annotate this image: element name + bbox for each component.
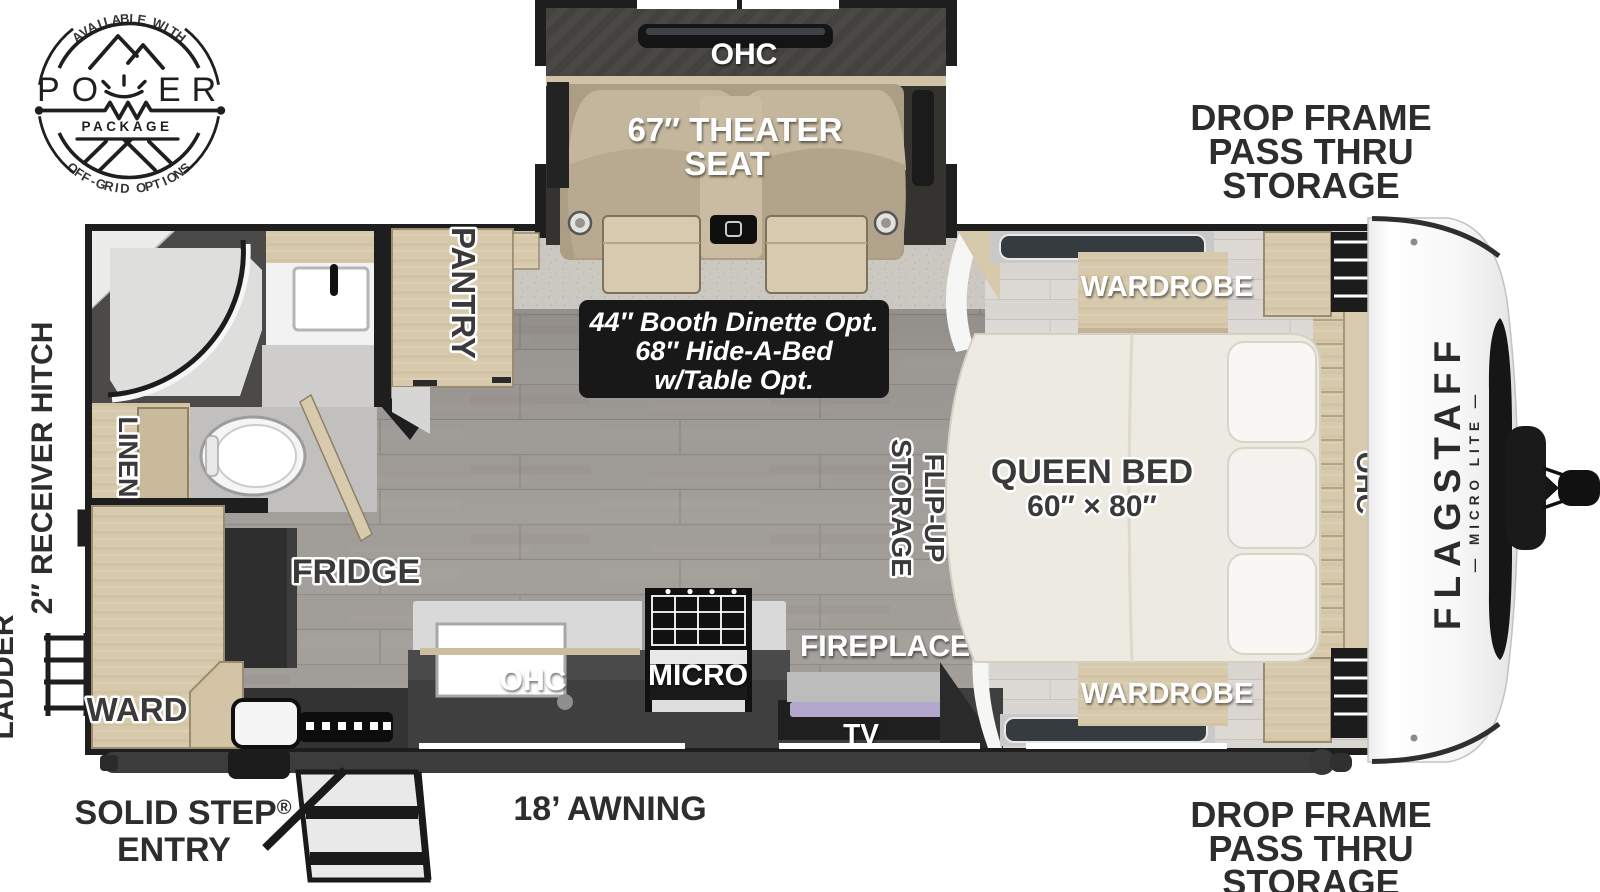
- svg-text:68″ Hide-A-Bed: 68″ Hide-A-Bed: [635, 336, 833, 366]
- svg-text:67″ THEATER: 67″ THEATER: [627, 111, 842, 148]
- svg-text:LINEN: LINEN: [113, 417, 143, 498]
- svg-text:44″ Booth Dinette Opt.: 44″ Booth Dinette Opt.: [589, 307, 879, 337]
- svg-text:STORAGE: STORAGE: [1222, 862, 1399, 892]
- svg-text:PO: PO: [37, 71, 110, 109]
- svg-text:LADDER: LADDER: [0, 614, 20, 739]
- svg-text:ENTRY: ENTRY: [117, 831, 231, 869]
- svg-text:STORAGE: STORAGE: [1222, 165, 1399, 206]
- svg-text:PANTRY: PANTRY: [445, 227, 482, 359]
- svg-text:D: D: [120, 181, 130, 196]
- svg-text:— MICRO LITE —: — MICRO LITE —: [1467, 390, 1482, 573]
- svg-text:OHC: OHC: [711, 38, 778, 71]
- svg-text:MICRO: MICRO: [648, 659, 748, 692]
- svg-text:60″ × 80″: 60″ × 80″: [1027, 490, 1157, 523]
- svg-text:FRIDGE: FRIDGE: [292, 553, 420, 591]
- svg-text:SEAT: SEAT: [684, 145, 770, 182]
- svg-text:FLAGSTAFF: FLAGSTAFF: [1427, 332, 1468, 630]
- svg-text:QUEEN BED: QUEEN BED: [991, 453, 1193, 491]
- svg-text:WARDROBE: WARDROBE: [1081, 271, 1253, 303]
- svg-text:FIREPLACE: FIREPLACE: [800, 630, 970, 663]
- svg-text:STORAGE: STORAGE: [886, 439, 917, 577]
- svg-text:ER: ER: [158, 71, 227, 109]
- svg-text:OHC: OHC: [500, 664, 567, 697]
- svg-text:2″ RECEIVER HITCH: 2″ RECEIVER HITCH: [26, 322, 59, 615]
- svg-text:WARD: WARD: [87, 691, 188, 728]
- svg-text:PACKAGE: PACKAGE: [81, 119, 172, 134]
- svg-text:18’ AWNING: 18’ AWNING: [513, 790, 706, 828]
- svg-text:w/Table Opt.: w/Table Opt.: [654, 365, 814, 395]
- svg-text:SOLID STEP®: SOLID STEP®: [75, 794, 292, 832]
- svg-text:WARDROBE: WARDROBE: [1081, 678, 1253, 710]
